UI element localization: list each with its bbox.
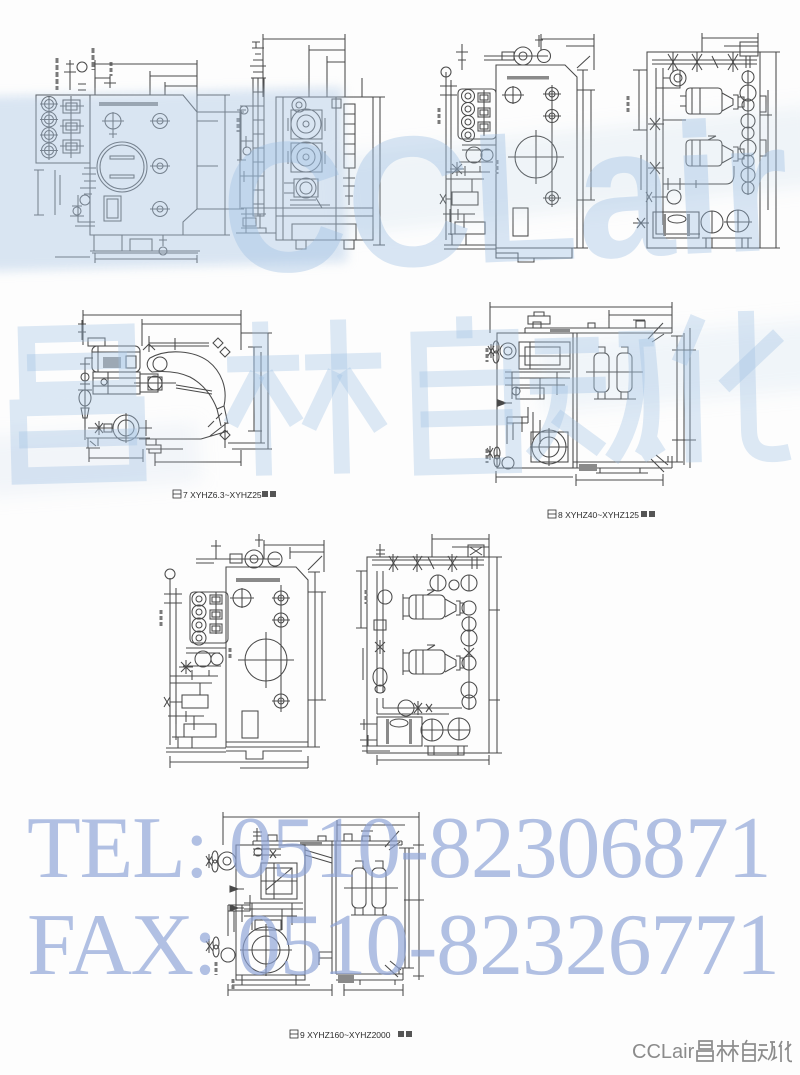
svg-text:8 XYHZ40~XYHZ125: 8 XYHZ40~XYHZ125 [558,510,639,520]
svg-text:CCLair: CCLair [632,1041,695,1063]
svg-text:7 XYHZ6.3~XYHZ25: 7 XYHZ6.3~XYHZ25 [183,490,262,500]
svg-text:9 XYHZ160~XYHZ2000: 9 XYHZ160~XYHZ2000 [300,1030,391,1040]
